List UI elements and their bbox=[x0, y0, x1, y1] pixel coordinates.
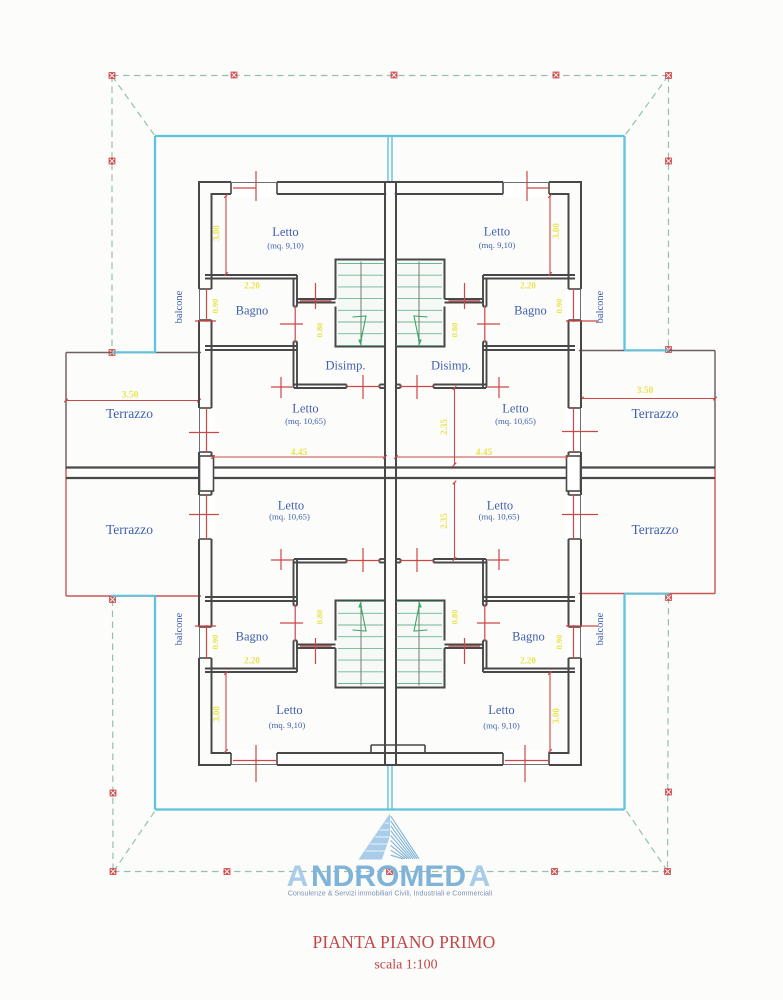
svg-text:3.00: 3.00 bbox=[551, 223, 561, 239]
svg-text:2.20: 2.20 bbox=[520, 656, 536, 666]
svg-text:(mq. 10,65): (mq. 10,65) bbox=[479, 512, 520, 522]
svg-text:Bagno: Bagno bbox=[236, 630, 269, 644]
svg-text:(mq. 10,65): (mq. 10,65) bbox=[495, 416, 536, 426]
svg-text:2.20: 2.20 bbox=[244, 656, 260, 666]
svg-text:0.80: 0.80 bbox=[450, 323, 460, 338]
svg-text:balcone: balcone bbox=[174, 290, 185, 323]
svg-text:Letto: Letto bbox=[276, 703, 302, 717]
svg-text:Disimp.: Disimp. bbox=[431, 359, 471, 373]
svg-text:0.80: 0.80 bbox=[315, 610, 325, 625]
svg-text:Letto: Letto bbox=[488, 703, 514, 717]
svg-text:2.20: 2.20 bbox=[520, 281, 536, 291]
svg-text:(mq. 10,65): (mq. 10,65) bbox=[285, 416, 326, 426]
svg-text:Terrazzo: Terrazzo bbox=[631, 406, 678, 421]
svg-text:3.00: 3.00 bbox=[212, 225, 222, 241]
svg-text:balcone: balcone bbox=[174, 612, 185, 645]
svg-text:3.50: 3.50 bbox=[122, 391, 139, 401]
svg-text:Letto: Letto bbox=[487, 499, 513, 513]
svg-text:2.35: 2.35 bbox=[439, 419, 449, 435]
svg-text:(mq. 9,10): (mq. 9,10) bbox=[269, 720, 306, 730]
svg-text:0.90: 0.90 bbox=[554, 299, 564, 314]
svg-text:PIANTA PIANO PRIMO: PIANTA PIANO PRIMO bbox=[312, 932, 495, 952]
svg-text:Bagno: Bagno bbox=[514, 304, 547, 318]
svg-text:4.45: 4.45 bbox=[476, 448, 493, 458]
svg-text:Letto: Letto bbox=[278, 499, 304, 513]
svg-text:0.80: 0.80 bbox=[450, 610, 460, 625]
svg-text:Disimp.: Disimp. bbox=[326, 359, 366, 373]
svg-text:3.00: 3.00 bbox=[212, 706, 222, 722]
svg-text:3.50: 3.50 bbox=[637, 386, 654, 396]
svg-text:Letto: Letto bbox=[272, 225, 298, 239]
svg-text:balcone: balcone bbox=[595, 612, 606, 645]
svg-text:(mq. 9,10): (mq. 9,10) bbox=[267, 241, 304, 251]
svg-text:Consulenze & Servizi immobilia: Consulenze & Servizi immobiliari Civili,… bbox=[288, 889, 493, 898]
svg-text:Letto: Letto bbox=[502, 402, 528, 416]
svg-text:2.35: 2.35 bbox=[439, 513, 449, 529]
svg-text:0.90: 0.90 bbox=[210, 635, 220, 650]
svg-text:Terrazzo: Terrazzo bbox=[631, 522, 678, 537]
svg-text:0.90: 0.90 bbox=[210, 299, 220, 314]
svg-text:(mq. 10,65): (mq. 10,65) bbox=[269, 512, 310, 522]
svg-text:Terrazzo: Terrazzo bbox=[106, 406, 153, 421]
svg-text:0.90: 0.90 bbox=[554, 635, 564, 650]
svg-text:Bagno: Bagno bbox=[236, 304, 269, 318]
svg-text:(mq. 9,10): (mq. 9,10) bbox=[483, 721, 520, 731]
svg-text:Letto: Letto bbox=[484, 225, 510, 239]
svg-text:scala 1:100: scala 1:100 bbox=[374, 958, 437, 973]
svg-text:2.20: 2.20 bbox=[244, 281, 260, 291]
svg-text:4.45: 4.45 bbox=[291, 448, 308, 458]
svg-text:(mq. 9,10): (mq. 9,10) bbox=[479, 240, 516, 250]
svg-text:3.00: 3.00 bbox=[551, 708, 561, 724]
svg-text:0.80: 0.80 bbox=[315, 323, 325, 338]
svg-text:Bagno: Bagno bbox=[512, 630, 545, 644]
svg-text:Letto: Letto bbox=[292, 402, 318, 416]
svg-text:balcone: balcone bbox=[595, 290, 606, 323]
svg-text:Terrazzo: Terrazzo bbox=[106, 522, 153, 537]
